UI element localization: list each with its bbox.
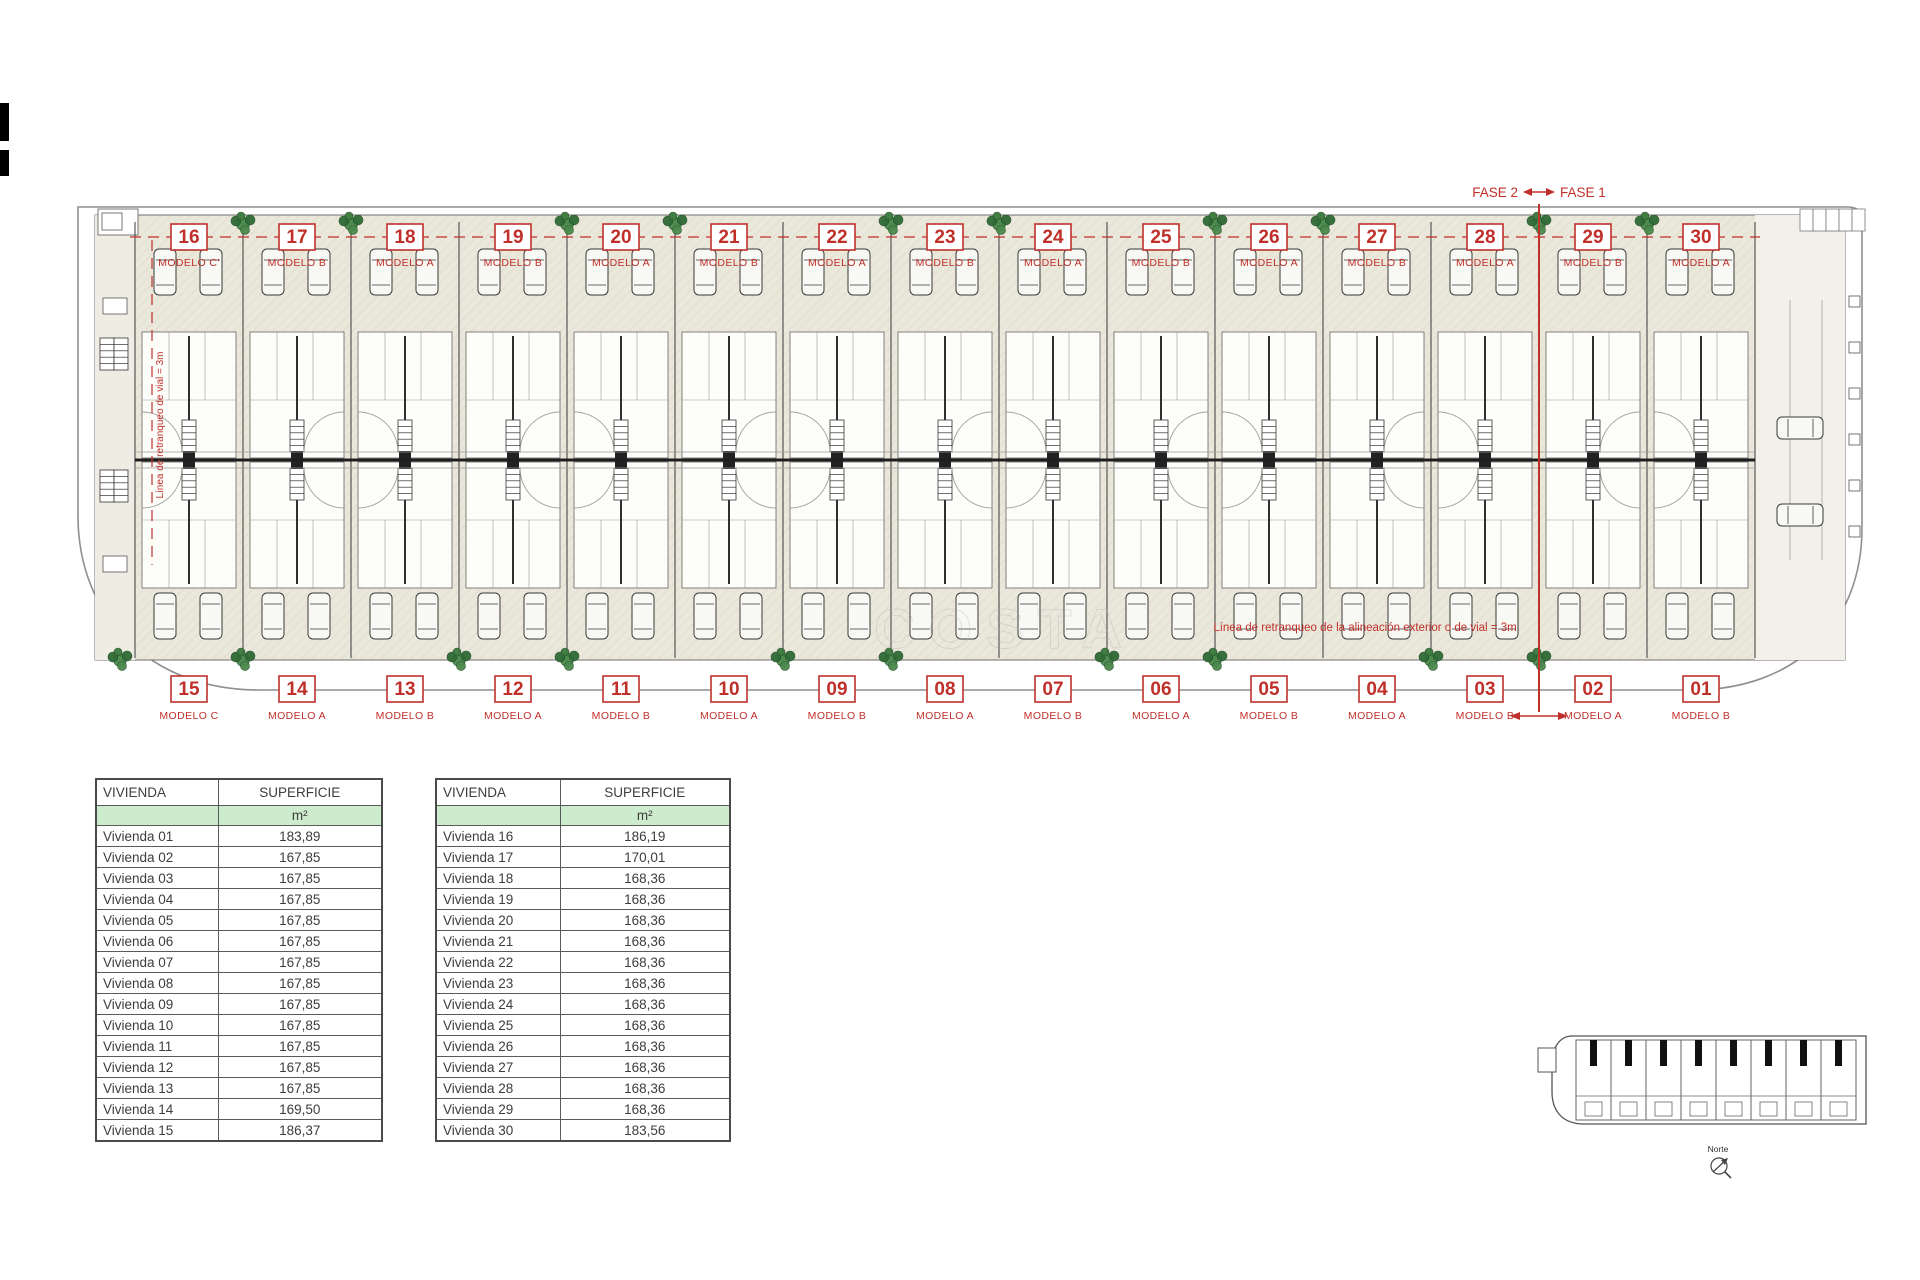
unit-label: 14MODELO A (268, 676, 326, 722)
table-row: Vivienda 28168,36 (436, 1078, 730, 1099)
vivienda-cell: Vivienda 06 (96, 931, 218, 952)
table-row: Vivienda 29168,36 (436, 1099, 730, 1120)
superficie-cell: 167,85 (218, 1015, 382, 1036)
unit-modelo: MODELO B (268, 257, 327, 269)
table-row: Vivienda 15186,37 (96, 1120, 382, 1142)
unit-number: 19 (502, 227, 523, 248)
fase1-label: FASE 1 (1560, 185, 1606, 200)
superficie-cell: 167,85 (218, 1078, 382, 1099)
unit-header-m2: m² (218, 806, 382, 826)
unit-modelo: MODELO A (1024, 257, 1082, 269)
superficie-cell: 168,36 (560, 931, 730, 952)
superficie-cell: 168,36 (560, 868, 730, 889)
unit-label: 03MODELO B (1456, 676, 1515, 722)
unit-number: 13 (394, 679, 415, 700)
superficie-cell: 167,85 (218, 994, 382, 1015)
unit-modelo: MODELO A (1348, 710, 1406, 722)
unit-modelo: MODELO B (1132, 257, 1191, 269)
superficie-cell: 167,85 (218, 1036, 382, 1057)
vivienda-cell: Vivienda 08 (96, 973, 218, 994)
unit-label: 09MODELO B (808, 676, 867, 722)
superficie-cell: 169,50 (218, 1099, 382, 1120)
col-header-vivienda: VIVIENDA (436, 779, 560, 806)
superficie-cell: 167,85 (218, 931, 382, 952)
unit-modelo: MODELO B (1456, 710, 1515, 722)
site-plan: COSTA Línea de retranqueo de la alineaci… (0, 0, 1920, 760)
vivienda-cell: Vivienda 11 (96, 1036, 218, 1057)
unit-label: 07MODELO B (1024, 676, 1083, 722)
table-row: Vivienda 20168,36 (436, 910, 730, 931)
vivienda-cell: Vivienda 10 (96, 1015, 218, 1036)
superficie-cell: 167,85 (218, 952, 382, 973)
table-row: Vivienda 16186,19 (436, 826, 730, 847)
table-row: Vivienda 24168,36 (436, 994, 730, 1015)
unit-modelo: MODELO B (1240, 710, 1299, 722)
unit-label: 10MODELO A (700, 676, 758, 722)
unit-modelo: MODELO B (592, 710, 651, 722)
vivienda-cell: Vivienda 13 (96, 1078, 218, 1099)
vivienda-cell: Vivienda 28 (436, 1078, 560, 1099)
superficie-cell: 168,36 (560, 1015, 730, 1036)
unit-label: 01MODELO B (1672, 676, 1731, 722)
vivienda-cell: Vivienda 04 (96, 889, 218, 910)
unit-number: 29 (1582, 227, 1603, 248)
table-row: Vivienda 26168,36 (436, 1036, 730, 1057)
fase2-label: FASE 2 (1472, 185, 1518, 200)
unit-number: 11 (611, 679, 632, 700)
unit-modelo: MODELO A (916, 710, 974, 722)
unit-modelo: MODELO C (159, 710, 218, 722)
unit-number: 23 (934, 227, 955, 248)
bottom-unit-labels: 15MODELO C14MODELO A13MODELO B12MODELO A… (159, 676, 1730, 722)
unit-modelo: MODELO A (1132, 710, 1190, 722)
unit-label: 13MODELO B (376, 676, 435, 722)
unit-modelo: MODELO A (376, 257, 434, 269)
unit-modelo: MODELO A (592, 257, 650, 269)
setback-annotation: Línea de retranqueo de la alineación ext… (1213, 622, 1516, 634)
unit-modelo: MODELO A (1456, 257, 1514, 269)
col-header-superficie: SUPERFICIE (218, 779, 382, 806)
vivienda-cell: Vivienda 12 (96, 1057, 218, 1078)
vivienda-cell: Vivienda 15 (96, 1120, 218, 1142)
blueprint-page: COSTA Línea de retranqueo de la alineaci… (0, 0, 1920, 1280)
unit-modelo: MODELO B (1024, 710, 1083, 722)
vivienda-cell: Vivienda 16 (436, 826, 560, 847)
table-row: Vivienda 13167,85 (96, 1078, 382, 1099)
table-row: Vivienda 03167,85 (96, 868, 382, 889)
unit-number: 25 (1150, 227, 1172, 248)
unit-modelo: MODELO B (916, 257, 975, 269)
minimap-outline (1552, 1036, 1866, 1124)
setback-annotation-left: Línea de retranqueo de vial = 3m (155, 351, 166, 498)
unit-label: 04MODELO A (1348, 676, 1406, 722)
table-row: Vivienda 09167,85 (96, 994, 382, 1015)
table-body-right: Vivienda 16186,19Vivienda 17170,01Vivien… (436, 826, 730, 1142)
superficie-cell: 168,36 (560, 910, 730, 931)
superficie-cell: 186,37 (218, 1120, 382, 1142)
vivienda-cell: Vivienda 20 (436, 910, 560, 931)
unit-number: 30 (1690, 227, 1711, 248)
unit-modelo: MODELO B (808, 710, 867, 722)
unit-number: 03 (1474, 679, 1495, 700)
superficie-cell: 168,36 (560, 994, 730, 1015)
unit-modelo: MODELO A (268, 710, 326, 722)
vivienda-cell: Vivienda 19 (436, 889, 560, 910)
superficie-cell: 168,36 (560, 1057, 730, 1078)
top-unit-labels: 16MODELO C'17MODELO B18MODELO A19MODELO … (158, 224, 1730, 269)
unit-modelo: MODELO A (700, 710, 758, 722)
unit-modelo: MODELO A (484, 710, 542, 722)
unit-modelo: MODELO B (1564, 257, 1623, 269)
unit-number: 05 (1258, 679, 1280, 700)
vivienda-cell: Vivienda 25 (436, 1015, 560, 1036)
vivienda-cell: Vivienda 26 (436, 1036, 560, 1057)
unit-label: 06MODELO A (1132, 676, 1190, 722)
vivienda-cell: Vivienda 27 (436, 1057, 560, 1078)
north-compass-icon (1711, 1158, 1731, 1178)
vivienda-cell: Vivienda 09 (96, 994, 218, 1015)
vivienda-cell: Vivienda 29 (436, 1099, 560, 1120)
table-row: Vivienda 02167,85 (96, 847, 382, 868)
vivienda-cell: Vivienda 17 (436, 847, 560, 868)
unit-number: 24 (1042, 227, 1064, 248)
unit-label: 08MODELO A (916, 676, 974, 722)
unit-modelo: MODELO B (376, 710, 435, 722)
table-row: Vivienda 18168,36 (436, 868, 730, 889)
table-row: Vivienda 19168,36 (436, 889, 730, 910)
unit-number: 26 (1258, 227, 1279, 248)
unit-number: 02 (1582, 679, 1603, 700)
vivienda-cell: Vivienda 21 (436, 931, 560, 952)
unit-label: 15MODELO C (159, 676, 218, 722)
col-header-vivienda: VIVIENDA (96, 779, 218, 806)
vivienda-cell: Vivienda 01 (96, 826, 218, 847)
superficie-cell: 168,36 (560, 1099, 730, 1120)
superficie-cell: 168,36 (560, 889, 730, 910)
unit-number: 09 (826, 679, 847, 700)
table-row: Vivienda 10167,85 (96, 1015, 382, 1036)
superficie-cell: 168,36 (560, 973, 730, 994)
unit-label: 11MODELO B (592, 676, 651, 722)
table-row: Vivienda 21168,36 (436, 931, 730, 952)
unit-number: 28 (1474, 227, 1495, 248)
superficie-cell: 183,89 (218, 826, 382, 847)
unit-number: 08 (934, 679, 955, 700)
norte-label: Norte (1708, 1144, 1729, 1154)
unit-modelo: MODELO A (1240, 257, 1298, 269)
unit-modelo: MODELO A (1672, 257, 1730, 269)
unit-modelo: MODELO A (1564, 710, 1622, 722)
unit-modelo: MODELO C' (158, 257, 220, 269)
superficie-cell: 167,85 (218, 847, 382, 868)
unit-number: 10 (718, 679, 739, 700)
unit-label: 02MODELO A (1564, 676, 1622, 722)
superficie-cell: 167,85 (218, 889, 382, 910)
unit-number: 17 (286, 227, 307, 248)
unit-number: 20 (610, 227, 631, 248)
vivienda-cell: Vivienda 22 (436, 952, 560, 973)
unit-header-m2: m² (560, 806, 730, 826)
unit-number: 12 (502, 679, 523, 700)
table-row: Vivienda 07167,85 (96, 952, 382, 973)
minimap-tab (1538, 1048, 1556, 1072)
vivienda-cell: Vivienda 24 (436, 994, 560, 1015)
table-row: Vivienda 11167,85 (96, 1036, 382, 1057)
superficie-cell: 167,85 (218, 973, 382, 994)
vivienda-cell: Vivienda 07 (96, 952, 218, 973)
superficie-table-right: VIVIENDA SUPERFICIE m² Vivienda 16186,19… (435, 778, 731, 1142)
table-row: Vivienda 30183,56 (436, 1120, 730, 1142)
table-row: Vivienda 08167,85 (96, 973, 382, 994)
table-row: Vivienda 06167,85 (96, 931, 382, 952)
superficie-cell: 167,85 (218, 910, 382, 931)
vivienda-cell: Vivienda 05 (96, 910, 218, 931)
superficie-cell: 183,56 (560, 1120, 730, 1142)
unit-number: 06 (1150, 679, 1171, 700)
vivienda-cell: Vivienda 23 (436, 973, 560, 994)
unit-modelo: MODELO A (808, 257, 866, 269)
superficie-cell: 168,36 (560, 952, 730, 973)
phase-minimap: Norte (1520, 1020, 1900, 1200)
unit-number: 07 (1042, 679, 1063, 700)
table-row: Vivienda 27168,36 (436, 1057, 730, 1078)
unit-number: 21 (718, 227, 740, 248)
superficie-cell: 168,36 (560, 1036, 730, 1057)
unit-number: 16 (178, 227, 199, 248)
superficie-cell: 170,01 (560, 847, 730, 868)
table-row: Vivienda 01183,89 (96, 826, 382, 847)
table-row: Vivienda 14169,50 (96, 1099, 382, 1120)
unit-number: 01 (1690, 679, 1712, 700)
table-row: Vivienda 05167,85 (96, 910, 382, 931)
vivienda-cell: Vivienda 03 (96, 868, 218, 889)
unit-number: 18 (394, 227, 415, 248)
vivienda-cell: Vivienda 18 (436, 868, 560, 889)
left-end-unit (95, 209, 138, 660)
unit-modelo: MODELO B (700, 257, 759, 269)
superficie-cell: 167,85 (218, 1057, 382, 1078)
table-row: Vivienda 04167,85 (96, 889, 382, 910)
vivienda-cell: Vivienda 30 (436, 1120, 560, 1142)
unit-label: 12MODELO A (484, 676, 542, 722)
superficie-cell: 186,19 (560, 826, 730, 847)
unit-number: 04 (1366, 679, 1388, 700)
vivienda-cell: Vivienda 02 (96, 847, 218, 868)
unit-label: 05MODELO B (1240, 676, 1299, 722)
unit-modelo: MODELO B (1348, 257, 1407, 269)
vivienda-cell: Vivienda 14 (96, 1099, 218, 1120)
table-body-left: Vivienda 01183,89Vivienda 02167,85Vivien… (96, 826, 382, 1142)
right-end-unit (1755, 209, 1865, 660)
unit-number: 15 (178, 679, 200, 700)
unit-number: 27 (1366, 227, 1387, 248)
unit-modelo: MODELO B (1672, 710, 1731, 722)
table-row: Vivienda 23168,36 (436, 973, 730, 994)
col-header-superficie: SUPERFICIE (560, 779, 730, 806)
table-row: Vivienda 12167,85 (96, 1057, 382, 1078)
superficie-cell: 167,85 (218, 868, 382, 889)
unit-number: 22 (826, 227, 847, 248)
table-row: Vivienda 25168,36 (436, 1015, 730, 1036)
unit-header-blank (436, 806, 560, 826)
unit-number: 14 (286, 679, 308, 700)
superficie-cell: 168,36 (560, 1078, 730, 1099)
superficie-table-left: VIVIENDA SUPERFICIE m² Vivienda 01183,89… (95, 778, 383, 1142)
unit-header-blank (96, 806, 218, 826)
table-row: Vivienda 22168,36 (436, 952, 730, 973)
unit-modelo: MODELO B (484, 257, 543, 269)
table-row: Vivienda 17170,01 (436, 847, 730, 868)
watermark: COSTA (874, 597, 1136, 660)
